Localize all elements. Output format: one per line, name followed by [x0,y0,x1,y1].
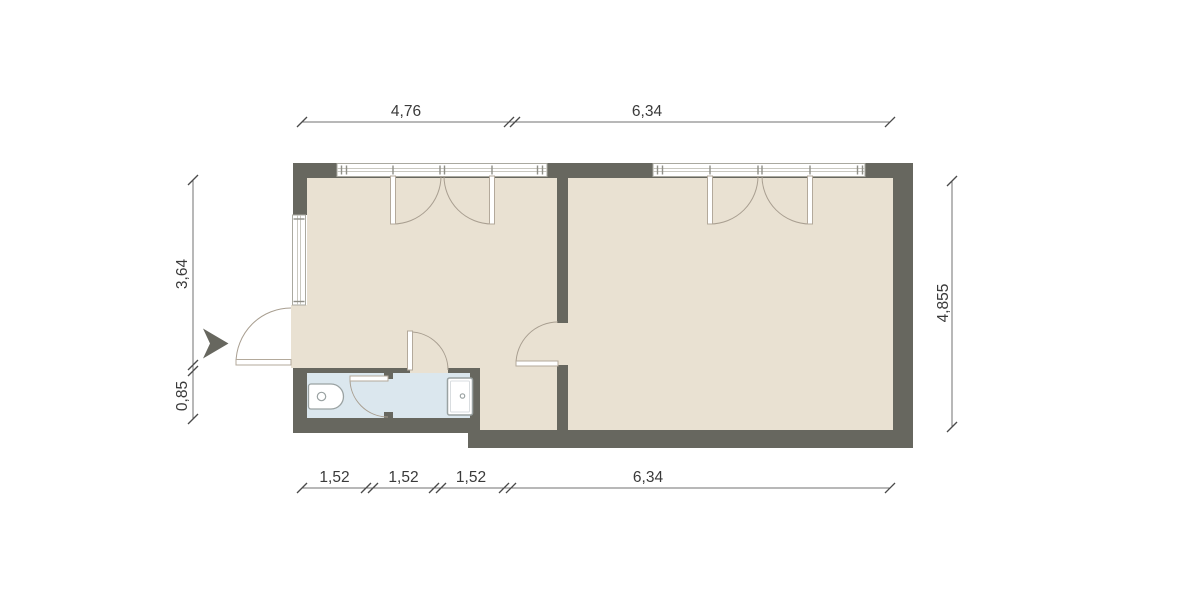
wall-bottom-right[interactable] [468,430,913,448]
toilet[interactable] [309,384,344,409]
shower-tray[interactable] [448,378,473,415]
dim-label-left-1: 3,64 [174,259,191,290]
wall-interior-lower[interactable] [557,365,568,430]
wall-right[interactable] [893,163,913,448]
floor-plan-canvas: 4,76 6,34 1,52 1,52 1,52 6,34 3,64 0,85 … [0,0,1200,600]
dim-label-top-1: 4,76 [391,103,421,120]
dim-label-bottom-4: 6,34 [633,469,664,486]
entrance-door[interactable] [236,308,291,365]
dim-label-bottom-2: 1,52 [388,469,418,486]
floors [291,178,893,430]
wall-left-upper[interactable] [293,163,307,215]
wall-interior-upper[interactable] [557,178,568,323]
entrance-threshold-floor [291,305,307,368]
dim-label-left-2: 0,85 [174,381,191,411]
window-top-left[interactable] [337,164,547,177]
entrance-arrow-icon [203,329,229,359]
dim-label-right-1: 4,855 [935,284,952,323]
wall-bathroom-top-left[interactable] [307,368,410,373]
dim-label-top-2: 6,34 [632,103,663,120]
floor-plan-page: 4,76 6,34 1,52 1,52 1,52 6,34 3,64 0,85 … [0,0,1200,600]
window-top-right[interactable] [653,164,865,177]
wall-bathroom-top-right[interactable] [448,368,480,373]
dim-label-bottom-1: 1,52 [319,469,349,486]
dim-label-bottom-3: 1,52 [456,469,486,486]
wall-bottom-left[interactable] [293,418,480,433]
window-left-wall[interactable] [293,215,306,305]
